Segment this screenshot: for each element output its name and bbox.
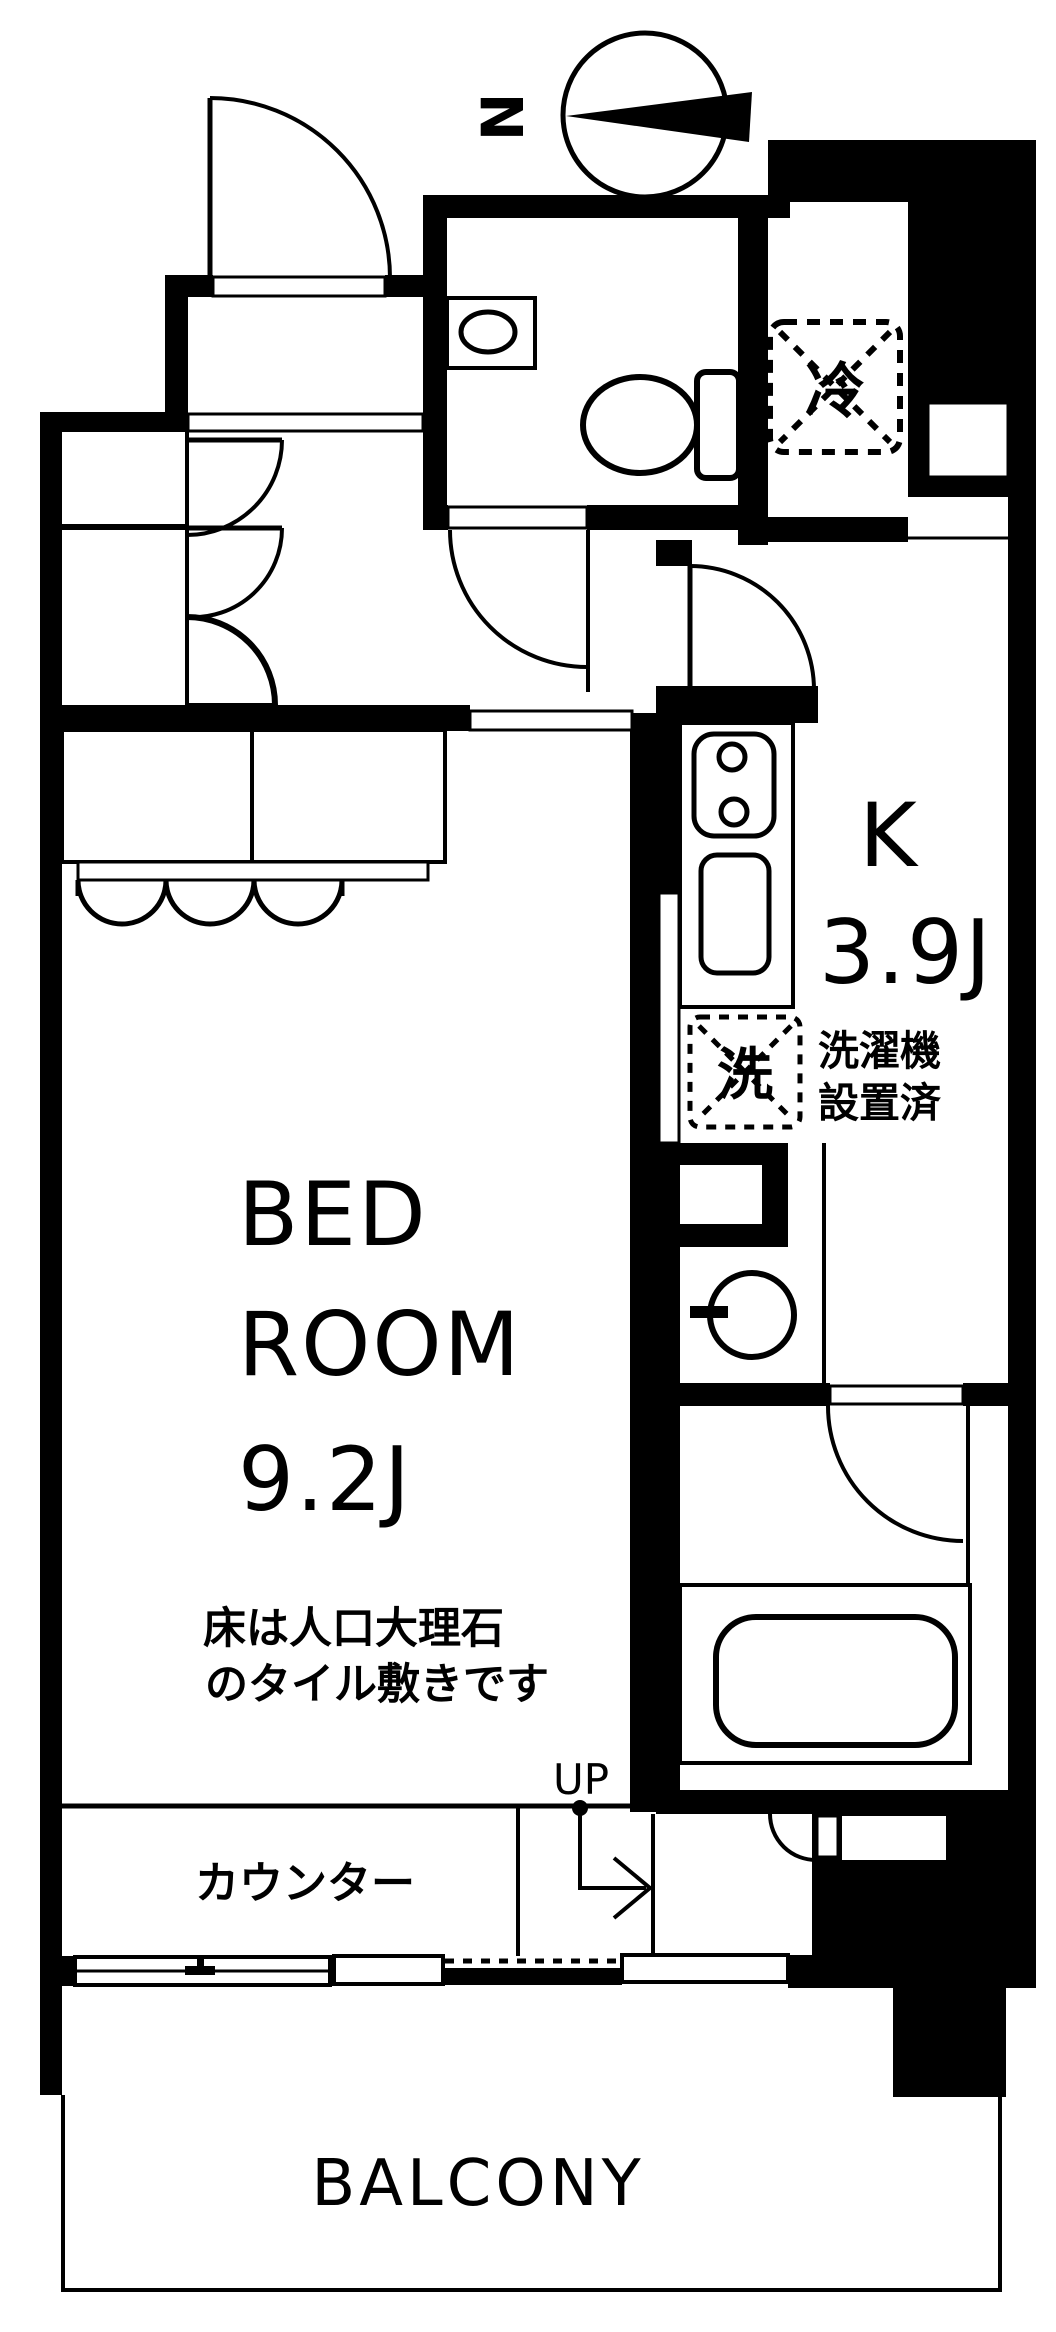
toilet-room (447, 298, 739, 667)
cabinet-inset (680, 1165, 762, 1224)
kitchen-door-arc (690, 566, 814, 690)
stairs-up-label: UP (553, 1755, 609, 1804)
bedroom-entry-threshold (470, 711, 632, 730)
toilet-sink-icon (461, 312, 515, 352)
bedroom-name-line2: ROOM (238, 1293, 522, 1396)
closet-door-track (78, 862, 428, 880)
toilet-door-arc (450, 530, 587, 667)
toilet-bowl-icon (583, 377, 697, 473)
under-stair-storage (840, 1814, 948, 1862)
north-label: N (469, 93, 537, 142)
balcony-label: BALCONY (311, 2147, 644, 2221)
floor-plan: N 冷 (0, 0, 1056, 2332)
bedroom: BED ROOM 9.2J 床は人口大理石 のタイル敷きです (62, 711, 632, 1710)
under-stair-door-panel (817, 1816, 838, 1857)
balcony: BALCONY (61, 2095, 1002, 2290)
closet-door3-arc (187, 617, 275, 705)
entrance-door-arc (210, 98, 390, 278)
bath-door-threshold (830, 1386, 963, 1404)
toilet-door-threshold (448, 507, 587, 528)
hall-closet (62, 432, 282, 705)
basin-faucet-icon (690, 1306, 728, 1318)
compass: N (469, 33, 752, 197)
kitchen-size: 3.9J (819, 901, 993, 1004)
floor-note-line2: のタイル敷きです (205, 1660, 549, 1710)
bathroom (680, 1386, 970, 1763)
entry-hall-threshold (188, 414, 423, 431)
window-panel-divider (197, 1957, 204, 1972)
kitchen-sink-icon (701, 855, 769, 973)
toilet-tank-icon (697, 372, 739, 478)
kitchen-wall-strip (659, 893, 679, 1143)
washer-note-line1: 洗濯機 (818, 1027, 941, 1075)
window-band (75, 1955, 788, 1985)
washer-label: 洗 (717, 1043, 773, 1108)
sliding-panel-2 (334, 1956, 443, 1984)
under-stair-door-arc (770, 1814, 817, 1860)
entrance (188, 98, 423, 431)
bedroom-name-line1: BED (238, 1163, 428, 1266)
bath-door-arc (828, 1406, 963, 1541)
pipe-space-notch (928, 403, 1008, 477)
kitchen-name: K (859, 784, 919, 887)
curtain-scallops-icon (78, 880, 342, 924)
entrance-threshold (213, 277, 385, 296)
counter-label: カウンター (195, 1858, 415, 1909)
closet-door1-arc (187, 440, 282, 535)
sliding-panel-3 (622, 1955, 788, 1982)
bedroom-size: 9.2J (238, 1428, 412, 1531)
washer-space: 洗 洗濯機 設置済 (690, 1017, 942, 1127)
washer-note-line2: 設置済 (818, 1079, 942, 1127)
refrigerator-label: 冷 (805, 357, 865, 427)
stove-burner-1 (719, 744, 745, 770)
floor-note-line1: 床は人口大理石 (203, 1604, 504, 1654)
counter-area: カウンター UP (62, 1755, 656, 1956)
bathtub-icon (716, 1617, 955, 1745)
closet-door2-arc (187, 528, 282, 617)
stove-burner-2 (721, 799, 747, 825)
